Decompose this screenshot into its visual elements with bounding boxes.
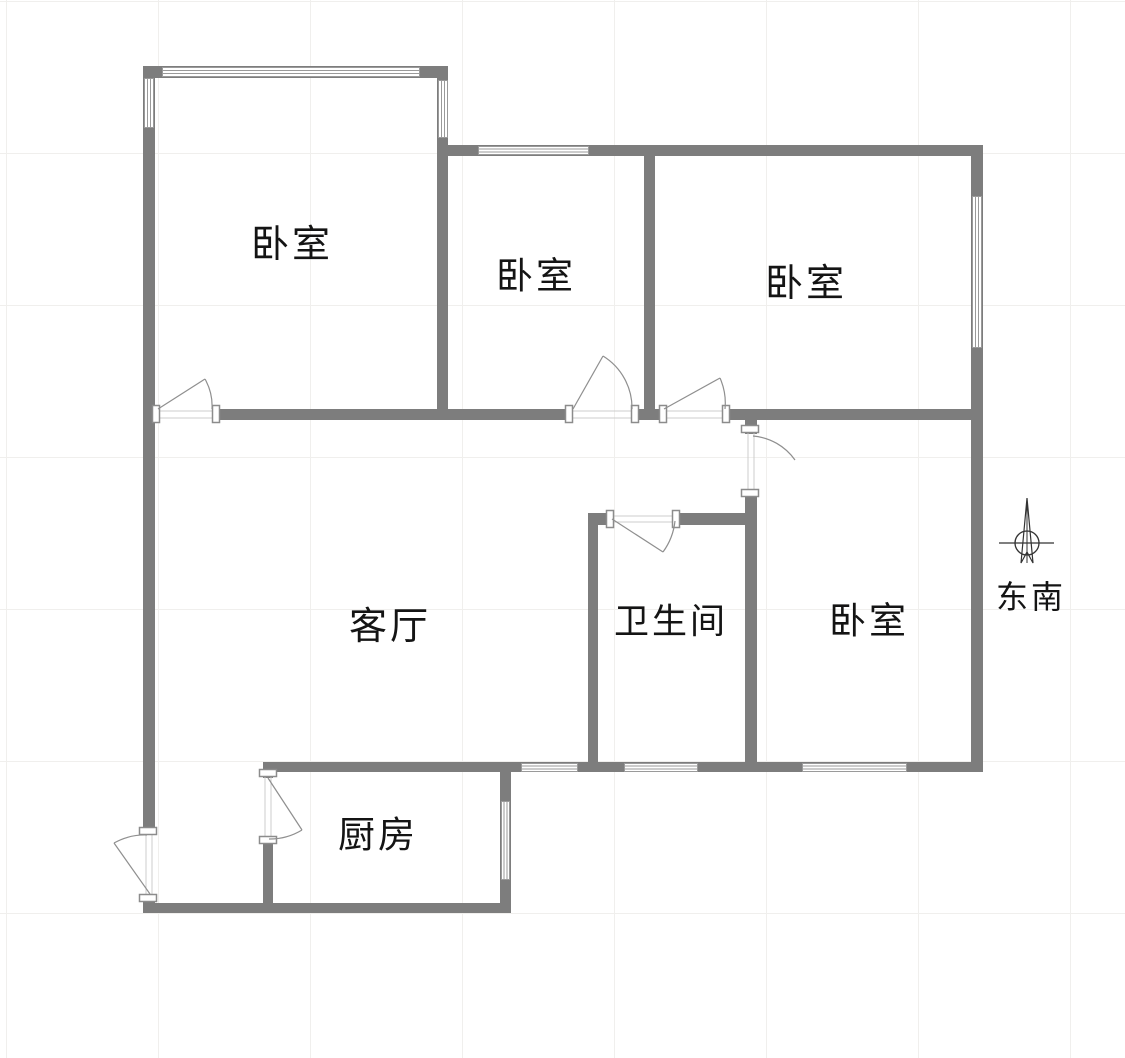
- room-label-bedroom-1: 卧室: [251, 226, 333, 264]
- window: [163, 68, 420, 77]
- wall: [588, 513, 598, 772]
- door-leaf: [158, 379, 205, 409]
- door-leaf: [612, 519, 663, 552]
- room-label-living-room: 客厅: [349, 608, 431, 646]
- wall: [143, 66, 155, 830]
- window: [145, 79, 154, 128]
- wall: [143, 903, 511, 913]
- wall: [213, 409, 573, 420]
- door-leaf: [573, 356, 603, 409]
- room-label-bedroom-2: 卧室: [496, 259, 576, 296]
- door-jamb: [260, 770, 277, 777]
- door-jamb: [140, 828, 157, 835]
- window: [502, 802, 510, 880]
- window: [973, 197, 982, 348]
- window: [522, 764, 578, 772]
- door-jamb: [673, 511, 680, 528]
- room-label-bedroom-4: 卧室: [829, 604, 909, 641]
- floor-plan-canvas: [0, 0, 1125, 1058]
- room-label-bathroom: 卫生间: [614, 605, 728, 640]
- window: [625, 764, 698, 772]
- window: [803, 764, 907, 772]
- window: [439, 81, 448, 138]
- door-jamb: [742, 426, 759, 433]
- door-leaf: [114, 843, 150, 894]
- wall: [263, 838, 273, 913]
- door-leaf: [664, 378, 720, 409]
- wall: [725, 409, 972, 420]
- door-swing-arc: [753, 436, 795, 460]
- door-jamb: [260, 837, 277, 844]
- wall: [745, 492, 757, 772]
- room-label-bedroom-3: 卧室: [765, 265, 847, 303]
- window: [479, 147, 589, 155]
- wall: [644, 156, 655, 419]
- floor-plan: 卧室 卧室 卧室 客厅 卫生间 卧室 厨房 东南: [0, 0, 1125, 1058]
- door-swing-arc: [205, 379, 212, 409]
- door-swing-arc: [603, 356, 632, 409]
- door-jamb: [723, 406, 730, 423]
- room-label-kitchen: 厨房: [338, 818, 418, 855]
- door-swing-arc: [720, 378, 725, 409]
- wall: [676, 513, 757, 525]
- door-jamb: [742, 490, 759, 497]
- door-jamb: [140, 895, 157, 902]
- door-leaf: [268, 778, 302, 830]
- door-jamb: [213, 406, 220, 423]
- door-swing-arc: [114, 835, 147, 843]
- compass-label: 东南: [996, 581, 1066, 613]
- door-jamb: [566, 406, 573, 423]
